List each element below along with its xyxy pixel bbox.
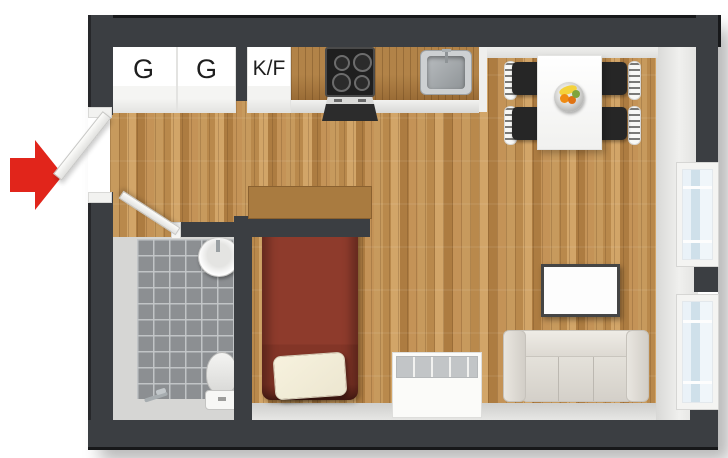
- sofa: [503, 330, 649, 402]
- apple-icon: [572, 90, 580, 98]
- wall-left-lower: [88, 192, 113, 447]
- fruit-bowl-icon: [554, 82, 584, 112]
- floor-drain-icon: [142, 387, 172, 405]
- sofa-arm-left: [503, 330, 526, 402]
- sofa-arm-right: [626, 330, 649, 402]
- floor-plan: G G K/F: [88, 15, 718, 447]
- headboard-shelf: [248, 186, 372, 219]
- wall-right-upper: [696, 15, 718, 164]
- storage-chest: [392, 352, 482, 418]
- toilet-icon: [204, 352, 238, 410]
- wall-bottom: [88, 420, 718, 450]
- oven-front: [322, 97, 378, 121]
- kitchen-cabinet-front: [291, 100, 479, 113]
- wardrobe-2: G: [177, 43, 236, 113]
- wardrobe-1: G: [110, 43, 177, 113]
- dining-chair-back: [628, 106, 641, 145]
- wall-stub: [236, 43, 247, 101]
- partition-wall-horizontal: [234, 216, 370, 237]
- counter-end-panel: [479, 44, 487, 112]
- faucet-icon: [445, 49, 448, 63]
- storage-chest-top: [396, 356, 478, 378]
- stove-icon: [325, 47, 375, 97]
- window-upper: [676, 162, 719, 267]
- window-glass: [682, 169, 713, 260]
- burner-icon: [354, 75, 370, 91]
- burner-icon: [334, 55, 350, 71]
- window-lower: [676, 294, 719, 410]
- fridge-freezer-label: K/F: [253, 57, 286, 81]
- wall-top: [88, 15, 721, 47]
- wall-left-upper: [88, 15, 113, 115]
- burner-icon: [332, 73, 351, 92]
- wall-right-corner: [690, 404, 718, 447]
- window-glass: [682, 301, 713, 403]
- wardrobe-2-label: G: [196, 54, 217, 85]
- partition-wall-vertical: [234, 216, 252, 447]
- bathroom-wall: [178, 222, 252, 237]
- sofa-seat: [523, 356, 631, 402]
- pillow: [273, 352, 348, 401]
- kitchen-sink-icon: [420, 50, 472, 95]
- wall-end-cap-lower: [88, 192, 112, 203]
- tv-panel: [541, 264, 620, 317]
- fridge-freezer: K/F: [247, 43, 291, 113]
- dining-chair-back: [628, 61, 641, 100]
- wardrobe-1-label: G: [133, 54, 154, 85]
- floor-plan-image: G G K/F: [0, 0, 728, 458]
- burner-icon: [353, 53, 372, 72]
- entry-arrow-tail: [10, 158, 35, 192]
